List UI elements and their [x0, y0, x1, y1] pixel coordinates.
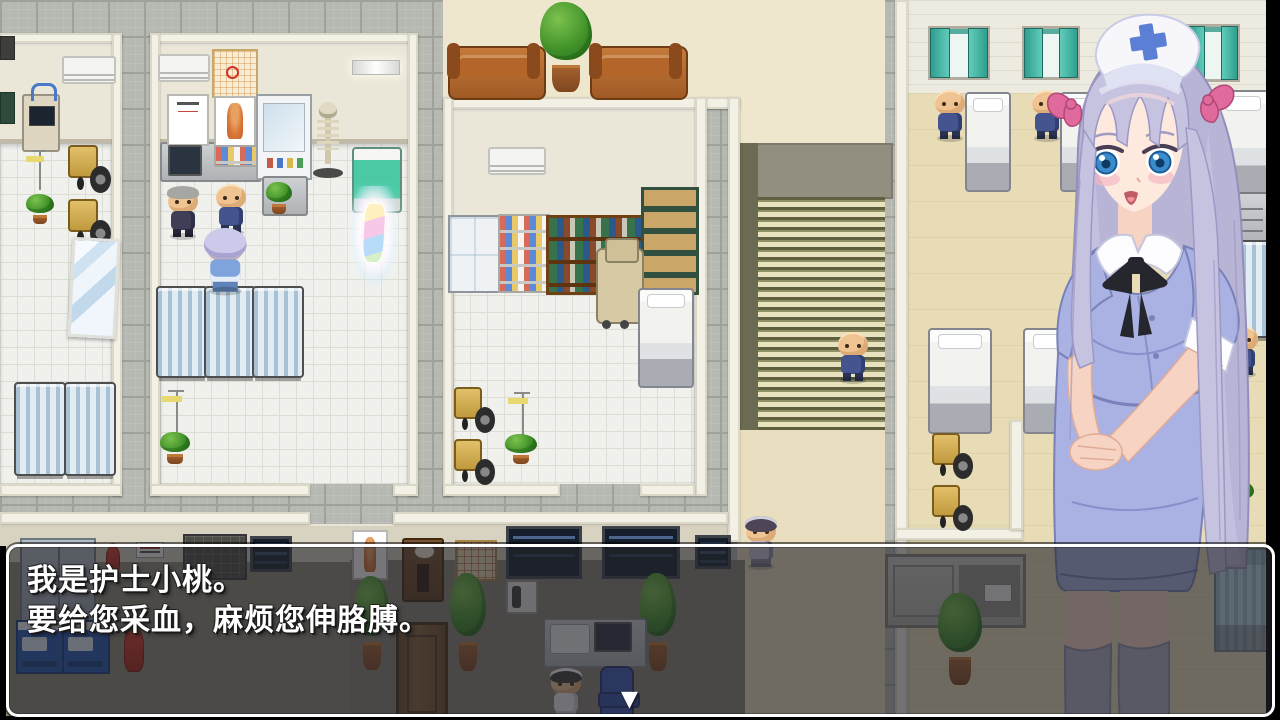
wall-fixture: [0, 92, 15, 124]
staircase: [758, 197, 885, 430]
patient-sprite: [933, 88, 967, 140]
air-conditioner: [488, 147, 546, 175]
wheelchair: [452, 436, 496, 486]
wall-border: [695, 97, 707, 496]
hospital-bed: [638, 288, 694, 388]
storage-rack: [641, 187, 699, 295]
privacy-screen: [64, 382, 116, 476]
wheelchair: [930, 482, 974, 532]
sparkle-crystal: [350, 186, 398, 286]
wall-border: [728, 97, 740, 542]
wall-border: [393, 484, 418, 496]
wheelchair: [66, 142, 112, 194]
continue-indicator-icon[interactable]: ▼: [621, 687, 638, 712]
eye-chart: [167, 94, 209, 146]
hospital-bed: [928, 328, 992, 434]
medicine-cabinet: [256, 94, 312, 180]
wall-border: [640, 484, 695, 496]
wall-border: [393, 512, 728, 524]
privacy-screen: [156, 286, 208, 378]
couch: [590, 46, 688, 100]
potted-tree: [540, 2, 592, 92]
potted-plant: [26, 194, 54, 224]
hospital-bed: [965, 92, 1011, 192]
dialogue-box[interactable]: 我是护士小桃。 要给您采血，麻烦您伸胳膊。 ▼: [6, 544, 1275, 717]
exam-chair: [596, 248, 644, 324]
dialogue-line-1: 我是护士小桃。: [27, 555, 244, 599]
doctor-sprite: [166, 186, 200, 238]
glass-cabinet: [448, 215, 500, 293]
window-curtains: [928, 26, 990, 80]
wall-border: [150, 484, 310, 496]
wheelchair: [930, 430, 974, 480]
bottle-shelf: [214, 145, 258, 167]
wall-fixture: [0, 36, 15, 60]
wall-border: [1010, 420, 1023, 530]
skeleton-model: [310, 102, 346, 178]
wall-light: [352, 60, 400, 75]
patient-sprite: [836, 330, 870, 382]
game-screen: 我是护士小桃。 要给您采血，麻烦您伸胳膊。 ▼: [0, 0, 1280, 720]
wall-border: [0, 512, 310, 524]
couch: [448, 46, 546, 100]
wall-border: [150, 33, 160, 496]
wheelchair: [452, 384, 496, 434]
supply-shelf: [498, 214, 550, 293]
laptop: [168, 145, 202, 176]
wall-calendar: [212, 49, 258, 98]
potted-plant: [160, 432, 190, 464]
medical-monitor: [22, 94, 60, 152]
wall-border: [408, 33, 418, 496]
hall-upper-right-floor: [740, 97, 885, 143]
standing-mirror: [67, 237, 120, 339]
anatomy-poster: [214, 96, 256, 148]
privacy-screen: [252, 286, 304, 378]
nurse-sprite: [204, 228, 247, 293]
wall-border: [0, 33, 122, 43]
patient-sprite: [214, 182, 248, 234]
iv-stand: [30, 150, 48, 196]
privacy-screen: [204, 286, 256, 378]
air-conditioner: [158, 54, 210, 82]
air-conditioner: [62, 56, 116, 84]
wall-border: [0, 484, 122, 496]
stairs-side-wall: [737, 143, 758, 433]
wall-border: [150, 33, 418, 43]
potted-plant: [505, 434, 537, 464]
privacy-screen: [14, 382, 66, 476]
potted-plant: [266, 182, 292, 214]
stairs-landing: [740, 143, 893, 199]
dialogue-line-2: 要给您采血，麻烦您伸胳膊。: [27, 595, 430, 639]
